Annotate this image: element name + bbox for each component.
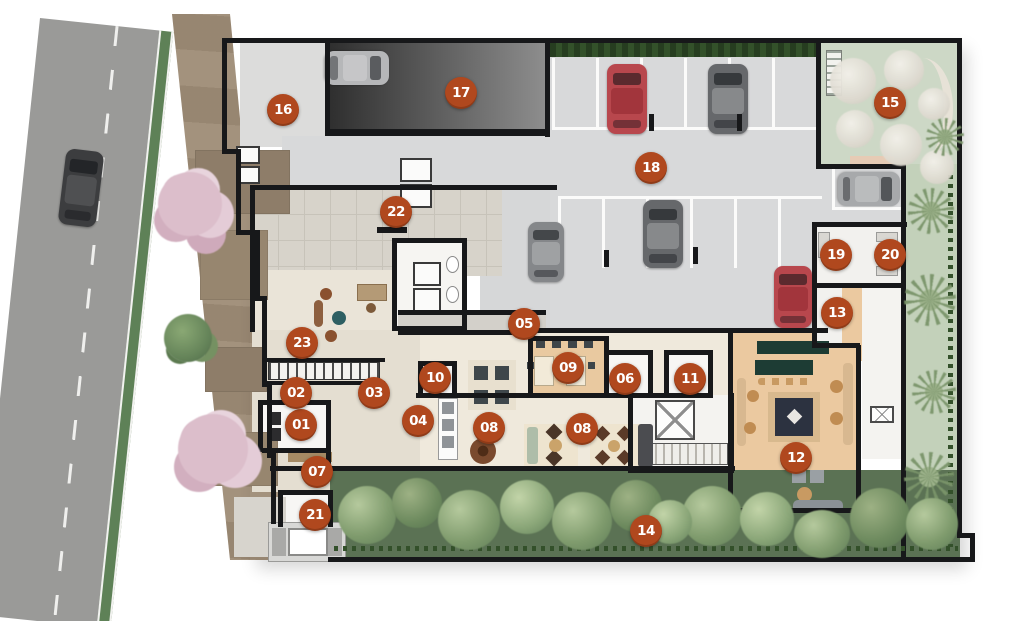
plan-marker-19[interactable]: 19	[820, 239, 852, 271]
plan-marker-10[interactable]: 10	[419, 362, 451, 394]
site-plan-canvas: 0102030405060708080910111213141516171819…	[0, 0, 1024, 621]
plan-marker-05[interactable]: 05	[508, 308, 540, 340]
plan-marker-06[interactable]: 06	[609, 363, 641, 395]
plan-marker-17[interactable]: 17	[445, 77, 477, 109]
plan-marker-22[interactable]: 22	[380, 196, 412, 228]
plan-marker-08[interactable]: 08	[566, 413, 598, 445]
plan-marker-13[interactable]: 13	[821, 297, 853, 329]
plan-marker-09[interactable]: 09	[552, 352, 584, 384]
plan-marker-07[interactable]: 07	[301, 456, 333, 488]
plan-marker-15[interactable]: 15	[874, 87, 906, 119]
plan-marker-11[interactable]: 11	[674, 363, 706, 395]
plan-marker-04[interactable]: 04	[402, 405, 434, 437]
plan-marker-23[interactable]: 23	[286, 327, 318, 359]
plan-marker-08[interactable]: 08	[473, 412, 505, 444]
plan-marker-21[interactable]: 21	[299, 499, 331, 531]
plan-marker-18[interactable]: 18	[635, 152, 667, 184]
plan-marker-20[interactable]: 20	[874, 239, 906, 271]
plan-marker-01[interactable]: 01	[285, 409, 317, 441]
plan-marker-16[interactable]: 16	[267, 94, 299, 126]
markers-layer: 0102030405060708080910111213141516171819…	[0, 0, 1024, 621]
plan-marker-02[interactable]: 02	[280, 377, 312, 409]
plan-marker-03[interactable]: 03	[358, 377, 390, 409]
plan-marker-14[interactable]: 14	[630, 515, 662, 547]
plan-marker-12[interactable]: 12	[780, 442, 812, 474]
